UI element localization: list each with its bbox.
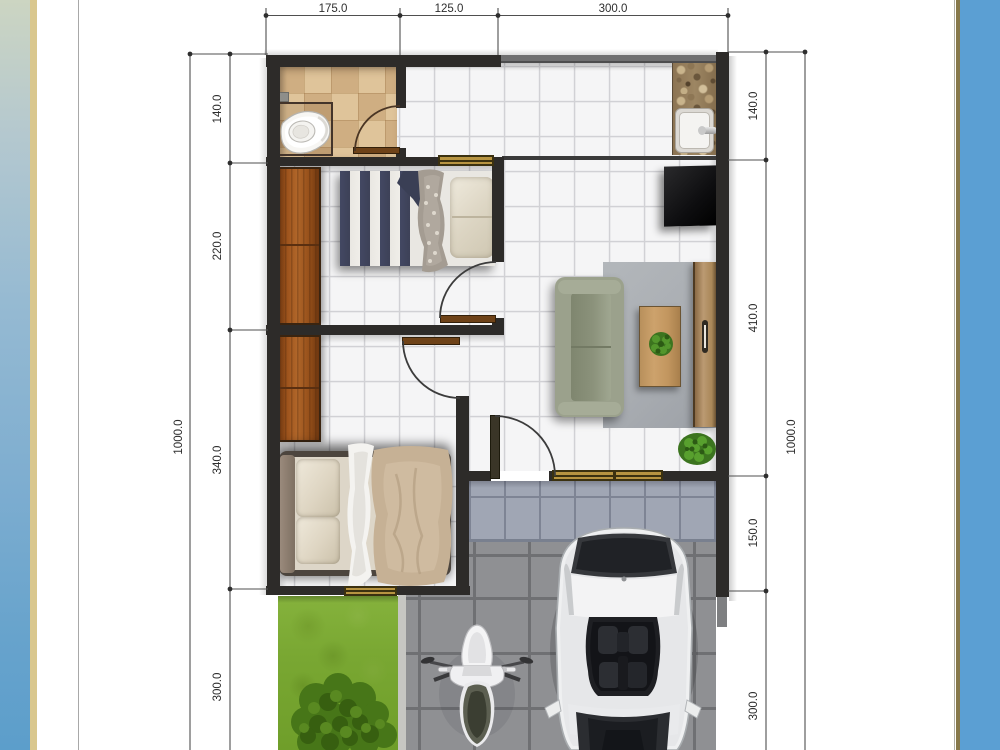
svg-text:1000.0: 1000.0: [786, 419, 798, 454]
svg-text:340.0: 340.0: [212, 446, 224, 475]
svg-text:300.0: 300.0: [748, 692, 760, 721]
svg-text:150.0: 150.0: [748, 519, 760, 548]
svg-text:125.0: 125.0: [435, 3, 464, 15]
svg-text:1000.0: 1000.0: [173, 419, 185, 454]
svg-text:300.0: 300.0: [599, 3, 628, 15]
svg-text:300.0: 300.0: [212, 673, 224, 702]
svg-text:175.0: 175.0: [319, 3, 348, 15]
svg-text:410.0: 410.0: [748, 304, 760, 333]
svg-text:140.0: 140.0: [748, 92, 760, 121]
svg-text:220.0: 220.0: [212, 232, 224, 261]
svg-text:140.0: 140.0: [212, 95, 224, 124]
